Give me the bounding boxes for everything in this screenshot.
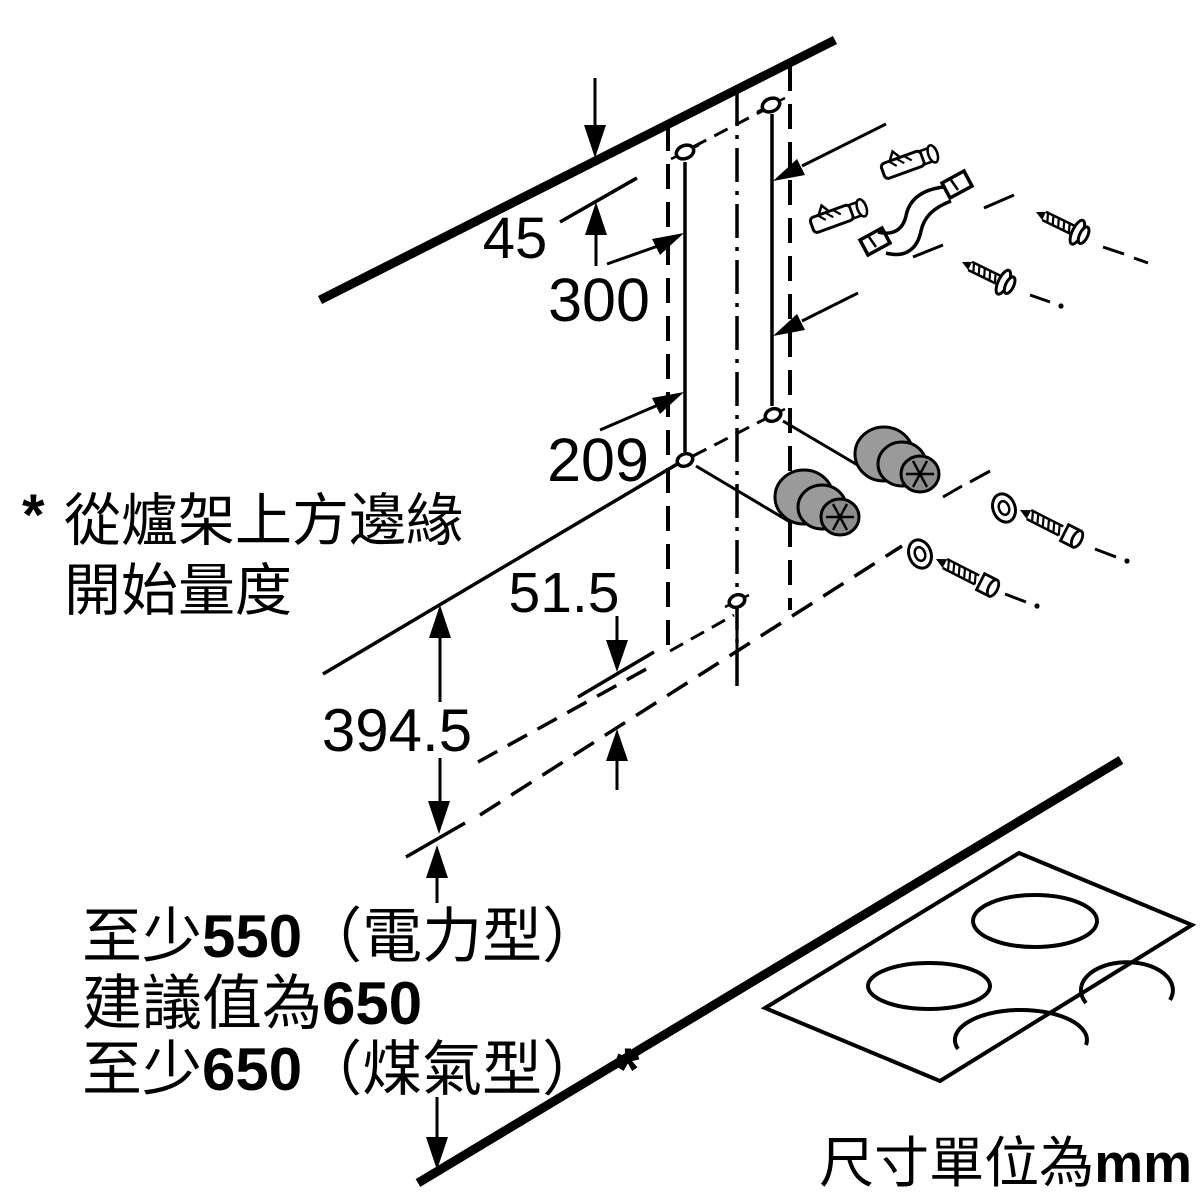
clearance-line-2: 建議值為650 [82,970,422,1037]
clearance-3-suffix: （煤氣型） [302,1037,602,1103]
clearance-1-value: 550 [202,903,302,970]
clearance-2-value: 650 [322,970,422,1037]
dim-300-label: 300 [548,266,650,334]
dim-209-label: 209 [547,426,649,494]
dim-51-5-label: 51.5 [509,561,620,625]
dim-45-label: 45 [483,206,548,271]
clearance-3-prefix: 至少 [82,1037,202,1103]
units-label: 尺寸單位為mm [819,1132,1192,1194]
units-unit: mm [1094,1132,1192,1194]
axis-dot [1034,603,1039,608]
clearance-2-prefix: 建議值為 [82,971,322,1037]
axis-dot [1058,303,1063,308]
note-line-1: 從爐架上方邊緣 [64,490,463,553]
diagram-canvas: 45 300 209 51.5 394.5 [0,0,1200,1200]
clearance-3-value: 650 [202,1036,302,1103]
units-prefix: 尺寸單位為 [819,1133,1094,1194]
clearance-3-asterisk: * [616,1036,640,1103]
units-text: 尺寸單位為mm [819,1132,1192,1194]
clearance-line-1: 至少550（電力型） [82,903,602,970]
clearance-1-suffix: （電力型） [302,904,602,970]
installation-diagram: 45 300 209 51.5 394.5 [0,0,1200,1200]
axis-dot [1124,558,1129,563]
clearance-1-prefix: 至少 [82,904,202,970]
dim-394-5-label: 394.5 [322,697,472,764]
note-line-2: 開始量度 [64,560,292,623]
note-asterisk: * [22,483,45,548]
clearance-line-3: 至少650（煤氣型）* [82,1036,640,1103]
